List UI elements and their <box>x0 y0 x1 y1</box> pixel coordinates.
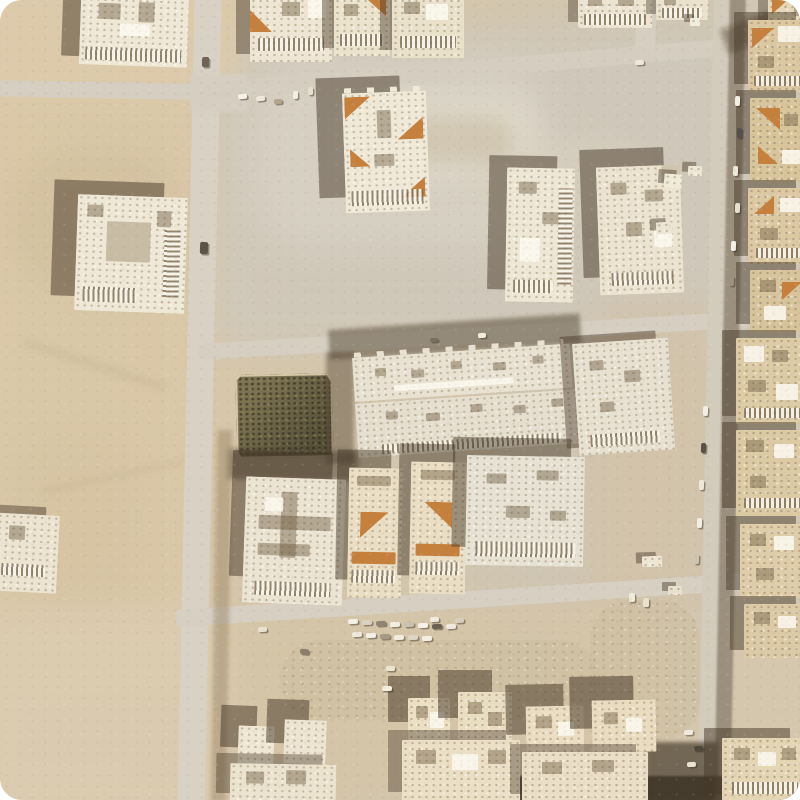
building-south-c <box>409 462 467 595</box>
building-detail-mark <box>756 568 774 580</box>
vehicle <box>422 636 432 642</box>
building-detail-mark <box>404 2 420 14</box>
building-detail-light <box>558 722 574 736</box>
building-detail-mark <box>542 762 562 774</box>
satellite-image-canvas <box>0 0 800 800</box>
building-detail-mark <box>98 3 121 20</box>
building-detail-mark <box>748 380 766 392</box>
building-detail-light <box>265 497 283 512</box>
building-detail-win <box>258 38 324 51</box>
building-detail-win <box>513 280 553 294</box>
shed <box>690 18 700 26</box>
building-detail-win <box>382 432 562 454</box>
vehicle <box>382 686 392 691</box>
vehicle <box>446 624 456 630</box>
shed <box>642 556 662 568</box>
building-detail-win <box>662 8 702 18</box>
building-detail-otri <box>360 512 388 538</box>
building-detail-win <box>340 34 384 46</box>
building-detail-mark <box>157 211 172 227</box>
building-detail-mark <box>519 182 537 194</box>
vehicle <box>733 166 738 176</box>
building-detail-light <box>778 26 800 42</box>
building-detail-mark <box>246 771 264 783</box>
building-detail-mark <box>794 2 800 16</box>
vehicle <box>238 94 247 100</box>
building-detail-win <box>590 430 661 447</box>
building-detail-win <box>400 36 456 48</box>
building-detail-otri <box>368 0 386 16</box>
building-mid-a <box>505 167 575 302</box>
building-detail-mark <box>746 440 764 452</box>
building-detail-mark <box>604 712 618 724</box>
building-detail-mark <box>734 748 750 760</box>
building-detail-mark <box>513 405 526 414</box>
building-detail-light <box>778 616 796 628</box>
vehicle <box>629 593 635 602</box>
building-topright-b <box>656 0 708 20</box>
building-detail-light <box>426 4 448 20</box>
building-detail-win <box>754 76 800 86</box>
building-detail-mark <box>486 473 506 483</box>
building-detail-win <box>163 229 181 298</box>
building-top-c <box>392 0 464 58</box>
vehicle <box>386 666 395 671</box>
building-detail-mark <box>488 750 506 764</box>
building-bottom-a2 <box>283 719 327 764</box>
vehicle <box>735 96 740 106</box>
building-detail-otri <box>756 108 780 130</box>
rightcol-block-3 <box>748 188 800 264</box>
building-detail-otri <box>344 97 371 120</box>
building-detail-mark <box>426 412 440 421</box>
building-detail-otri <box>250 10 272 32</box>
vehicle <box>390 622 400 628</box>
building-detail-mark <box>784 114 798 126</box>
building-detail-otri <box>397 117 424 140</box>
building-detail-mark <box>421 470 455 481</box>
building-detail-otri <box>772 0 790 14</box>
tree-grove <box>235 373 333 459</box>
building-left-edge <box>0 512 60 594</box>
building-detail-mark <box>138 2 155 23</box>
building-bottom-b1 <box>408 698 450 744</box>
building-detail-win <box>254 581 330 598</box>
building-detail-mark <box>760 228 778 240</box>
building-detail-light <box>774 444 794 458</box>
building-detail-mark <box>600 401 615 412</box>
building-detail-mark <box>782 748 796 760</box>
building-detail-mark <box>9 525 26 540</box>
building-bottom-c-base <box>522 752 648 800</box>
building-detail-win <box>82 286 136 303</box>
building-detail-win <box>584 14 646 25</box>
complex-west-shadow <box>326 352 354 464</box>
building-detail-mark <box>416 706 428 718</box>
vehicle <box>308 87 313 95</box>
building-detail-light <box>308 0 326 18</box>
shed <box>688 166 702 176</box>
building-south-d <box>465 455 585 567</box>
building-detail-light <box>776 384 798 400</box>
building-detail-mark <box>760 280 776 292</box>
building-detail-mark <box>537 470 559 480</box>
building-west-court <box>74 194 188 314</box>
vehicle <box>694 746 703 751</box>
building-detail-light <box>394 377 514 391</box>
building-detail-mark <box>750 476 766 488</box>
building-detail-win <box>557 188 573 284</box>
building-detail-mark <box>344 4 358 16</box>
building-bottom-b-base <box>402 740 520 800</box>
vehicle <box>430 617 439 622</box>
building-detail-win <box>756 248 800 258</box>
vehicle <box>366 633 376 639</box>
building-bottom-a1 <box>237 725 274 768</box>
vehicle <box>348 619 358 625</box>
vehicle <box>300 649 309 655</box>
building-detail-light <box>764 306 786 320</box>
bottom-dark-patch <box>646 742 718 800</box>
vehicle <box>394 635 404 641</box>
vehicle <box>418 623 428 629</box>
building-south-a <box>242 476 346 605</box>
vehicle <box>694 554 699 564</box>
vehicle <box>635 60 644 65</box>
building-detail-light <box>430 712 444 728</box>
building-detail-win <box>1 563 46 577</box>
building-detail-mark <box>470 404 483 413</box>
vehicle <box>684 730 693 735</box>
building-detail-win <box>475 541 575 558</box>
rightcol-block-7 <box>740 524 800 598</box>
building-detail-light <box>452 754 478 770</box>
building-detail-mark <box>772 350 788 362</box>
road-horizontal-topleft <box>0 80 196 100</box>
building-detail-mark <box>754 612 770 624</box>
vehicle <box>455 618 464 623</box>
rightcol-block-5 <box>736 338 800 424</box>
building-detail-mark <box>532 355 544 364</box>
building-detail-mark <box>758 56 774 68</box>
vehicle <box>697 518 702 528</box>
building-detail-mark <box>286 770 306 784</box>
vehicle <box>432 624 442 630</box>
building-detail-otri <box>752 28 774 48</box>
building-detail-mark <box>750 534 766 546</box>
building-detail-mark <box>551 398 564 407</box>
building-detail-mark <box>536 716 552 728</box>
building-bottom-b2 <box>458 692 512 740</box>
building-south-b <box>347 468 403 599</box>
vehicle <box>729 276 734 286</box>
building-detail-orange <box>416 544 460 557</box>
vehicle <box>293 91 298 99</box>
vehicle <box>362 620 372 626</box>
vehicle <box>274 99 282 105</box>
building-bottom-a-base <box>230 763 337 800</box>
shed <box>664 173 683 188</box>
building-detail-mark <box>588 0 602 6</box>
building-topleft <box>79 0 190 68</box>
building-detail-mark <box>386 411 399 420</box>
vehicle <box>352 632 362 638</box>
building-detail-mark <box>506 506 530 518</box>
building-detail-mark <box>610 182 626 195</box>
building-detail-mark <box>411 369 425 378</box>
building-detail-mark <box>374 154 394 167</box>
building-detail-mark <box>257 543 309 557</box>
building-detail-otri <box>758 146 778 164</box>
building-detail-mark <box>357 476 391 487</box>
rightcol-block-4 <box>750 270 800 332</box>
building-detail-mark <box>618 0 634 6</box>
building-detail-otri <box>350 149 371 168</box>
vehicle <box>687 762 696 767</box>
building-detail-win <box>744 498 800 508</box>
building-topright-a <box>578 0 652 28</box>
building-detail-win <box>732 782 798 794</box>
complex-east-block <box>572 338 675 456</box>
vehicle <box>703 406 708 416</box>
vehicle <box>430 338 438 342</box>
building-detail-mark <box>282 2 300 16</box>
vehicle <box>380 634 390 640</box>
building-detail-mark <box>493 362 507 371</box>
rightcol-block-2 <box>750 98 800 182</box>
shed <box>656 222 673 235</box>
building-detail-mark <box>416 750 436 764</box>
building-detail-light <box>520 238 540 262</box>
vehicle <box>408 635 418 641</box>
vehicle <box>699 480 704 490</box>
building-detail-light <box>120 24 150 37</box>
building-bottom-right <box>722 738 800 800</box>
building-detail-win <box>415 562 459 576</box>
building-detail-orange <box>351 552 395 565</box>
building-detail-win <box>85 46 181 62</box>
building-detail-light <box>780 198 800 212</box>
building-top-a <box>250 0 332 62</box>
vehicle <box>478 333 486 338</box>
vehicle <box>735 203 740 213</box>
vehicle <box>376 621 386 627</box>
building-detail-mark <box>592 760 614 772</box>
building-detail-mark <box>375 368 387 377</box>
building-detail-mark <box>624 370 641 383</box>
building-detail-win <box>744 408 800 418</box>
building-detail-mark <box>550 510 566 520</box>
building-detail-mark <box>589 360 604 371</box>
vehicle <box>202 57 209 67</box>
building-detail-mark <box>87 204 103 217</box>
vehicle <box>256 96 265 102</box>
building-bottom-c2 <box>592 699 657 752</box>
building-detail-mark <box>664 0 676 5</box>
building-detail-win <box>611 271 673 286</box>
building-center-north <box>342 91 430 214</box>
rightcol-block-6 <box>736 430 800 516</box>
vehicle <box>258 627 267 632</box>
building-detail-light <box>626 718 642 732</box>
building-detail-otri <box>754 196 774 214</box>
building-bottom-c1 <box>526 705 585 756</box>
rightcol-block-1 <box>748 20 800 92</box>
building-detail-mark <box>488 712 502 726</box>
vehicle <box>200 242 208 254</box>
building-detail-win <box>351 189 423 207</box>
building-detail-otri <box>782 282 800 300</box>
shed <box>668 586 682 595</box>
building-detail-mark <box>626 222 642 237</box>
building-detail-win <box>351 570 395 584</box>
building-detail-light <box>774 536 794 550</box>
building-detail-mark <box>468 702 482 714</box>
vehicle <box>643 598 649 607</box>
building-detail-light <box>744 346 764 362</box>
building-detail-court <box>106 221 151 263</box>
building-detail-light <box>758 752 776 766</box>
vehicle <box>701 443 706 453</box>
building-detail-mark <box>645 189 663 202</box>
building-top-b <box>334 0 390 56</box>
building-detail-mark <box>450 361 462 370</box>
vehicle <box>737 128 742 138</box>
building-detail-otri <box>424 502 452 528</box>
rightcol-block-8 <box>744 604 800 658</box>
vehicle <box>731 241 736 251</box>
building-detail-light <box>782 150 800 164</box>
building-detail-mark <box>377 110 392 138</box>
vehicle <box>404 622 414 628</box>
